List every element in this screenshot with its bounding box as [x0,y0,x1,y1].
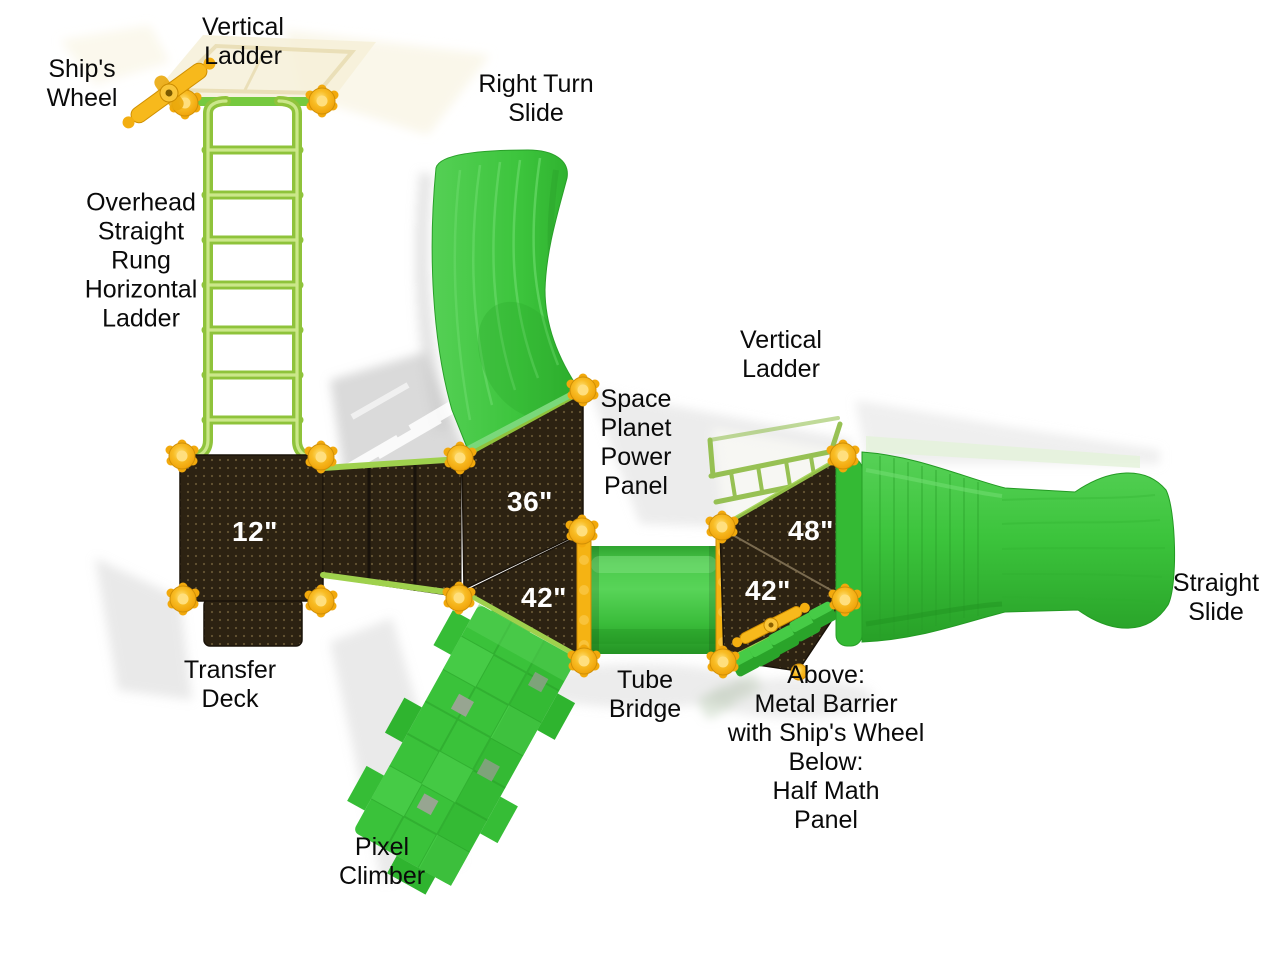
deck-42-right-height-label: 42" [745,575,791,607]
playground-top-view-diagram: Ship's Wheel Vertical Ladder Overhead St… [0,0,1279,960]
tube-bridge-part [577,525,730,667]
straight-slide-entrance [836,458,862,646]
label-right-turn-slide: Right Turn Slide [478,70,593,128]
step-bridge [323,457,461,597]
label-vertical-ladder-top: Vertical Ladder [202,13,284,71]
deck-12-height-label: 12" [232,516,278,548]
transfer-deck-platform [204,599,302,646]
deck-36-height-label: 36" [507,486,553,518]
label-straight-slide: Straight Slide [1173,569,1259,627]
label-space-planet-power-panel: Space Planet Power Panel [601,385,672,501]
label-barrier-note: Above: Metal Barrier with Ship's Wheel B… [728,661,925,835]
label-pixel-climber: Pixel Climber [339,833,425,891]
label-transfer-deck: Transfer Deck [184,656,276,714]
deck-48-height-label: 48" [788,515,834,547]
straight-slide [836,436,1175,646]
tube-bridge-rail-left [577,535,591,663]
label-vertical-ladder-right: Vertical Ladder [740,326,822,384]
label-tube-bridge: Tube Bridge [609,666,681,724]
label-ships-wheel: Ship's Wheel [47,55,118,113]
label-overhead-ladder: Overhead Straight Rung Horizontal Ladder [85,189,198,334]
overhead-horizontal-ladder [190,101,316,458]
deck-42-left-height-label: 42" [521,582,567,614]
